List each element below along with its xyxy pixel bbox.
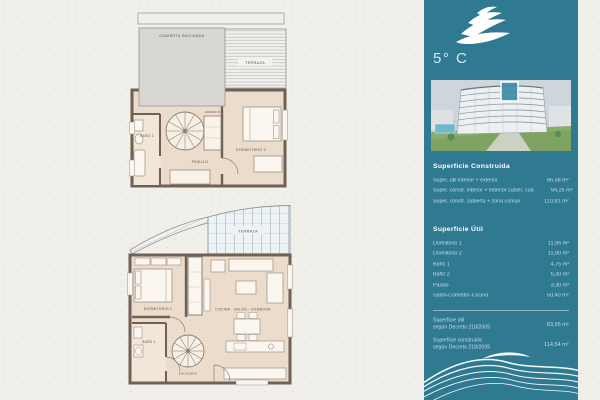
armario-label: ARMARIO xyxy=(204,110,220,114)
dormitorio2-label: DORMITORIO 2 xyxy=(236,148,266,152)
dresser xyxy=(254,156,282,172)
window-opening xyxy=(128,273,133,295)
wardrobe-units xyxy=(135,258,181,265)
section-title: Superficie Construida xyxy=(433,163,569,170)
area-value: 3,30 m² xyxy=(550,283,569,289)
stair-landing xyxy=(170,170,210,184)
decreto-label: Superficie útil según Decreto 218/2005 xyxy=(433,318,490,332)
bed-dormitorio-2 xyxy=(243,107,281,141)
curved-pergola-edge xyxy=(130,217,208,254)
window-opening xyxy=(283,110,288,140)
wardrobe-shaft xyxy=(188,257,202,315)
area-value: 94,25 m² xyxy=(551,188,573,194)
area-value: 50,40 m² xyxy=(547,293,569,299)
area-value: 4,75 m² xyxy=(550,262,569,268)
area-row: Super. útil interior + exterior 86,58 m² xyxy=(433,178,569,184)
area-label: Pasillo xyxy=(433,283,449,288)
lower-floor-plan: TERRAZA xyxy=(108,193,333,393)
superficie-util-section: Superficie Útil Dormitorio 1 11,95 m² Do… xyxy=(433,226,569,303)
salon-label: COCINA - SALÓN - COMEDOR xyxy=(215,307,271,312)
area-value: 11,80 m² xyxy=(548,251,569,257)
cubierta-label: CUBIERTA INCLINADA xyxy=(159,34,205,38)
terraza-lower-label: TERRAZA xyxy=(238,230,258,234)
info-sidebar: 5° C xyxy=(424,0,578,400)
upper-floor-plan-drawing: CUBIERTA INCLINADA TERRAZA BAÑO 2 ARMARI… xyxy=(98,10,313,190)
area-label: Super. constr. interior + exterior cubie… xyxy=(433,188,535,193)
area-label: Super. constr. cubierta + zona común xyxy=(433,199,520,204)
area-row: Super. constr. cubierta + zona común 110… xyxy=(433,199,569,205)
window-opening xyxy=(288,265,293,289)
area-label: Baño 2 xyxy=(433,272,450,277)
armario-closet xyxy=(204,116,221,150)
bano1-label: BAÑO 1 xyxy=(142,339,156,344)
cubierta-inclinada-area xyxy=(139,28,225,106)
section-divider xyxy=(433,310,569,311)
decreto-value: 83,55 m² xyxy=(547,322,569,328)
decreto-label-line2: según Decreto 218/2005 xyxy=(433,325,490,330)
area-label: Salón-Comedor-Cocina xyxy=(433,293,488,298)
area-value: 11,95 m² xyxy=(548,241,569,247)
decreto-label-line1: Superficie útil xyxy=(433,318,464,323)
area-row: Pasillo 3,30 m² xyxy=(433,283,569,289)
area-row: Baño 2 6,30 m² xyxy=(433,272,569,278)
spiral-staircase-lower xyxy=(172,335,204,367)
section-title: Superficie Útil xyxy=(433,226,569,233)
area-value: 86,58 m² xyxy=(547,178,569,184)
pool xyxy=(435,124,455,133)
superficie-construida-section: Superficie Construida Super. útil interi… xyxy=(433,163,569,209)
spiral-staircase-upper xyxy=(166,112,204,150)
area-row: Baño 1 4,75 m² xyxy=(433,262,569,268)
escalera-label: ESCALERA xyxy=(179,372,197,376)
tree xyxy=(555,131,561,137)
decreto-row: Superficie útil según Decreto 218/2005 8… xyxy=(433,317,569,332)
building-render xyxy=(431,80,571,151)
tv-sideboard xyxy=(204,279,210,311)
terraza-label: TERRAZA xyxy=(245,61,265,65)
bed-dormitorio-1 xyxy=(134,269,172,302)
wave-logo-icon xyxy=(453,4,513,48)
area-row: Dormitorio 2 11,80 m² xyxy=(433,251,569,257)
wave-watermark xyxy=(424,342,578,400)
window-opening xyxy=(130,160,135,176)
area-row: Salón-Comedor-Cocina 50,40 m² xyxy=(433,293,569,299)
area-row: Dormitorio 1 11,95 m² xyxy=(433,241,569,247)
pasillo-label: PASILLO xyxy=(192,160,209,164)
window-opening xyxy=(288,309,293,337)
area-label: Dormitorio 2 xyxy=(433,251,462,256)
bano2-label: BAÑO 2 xyxy=(140,133,154,138)
window-opening xyxy=(236,380,268,385)
window-opening xyxy=(130,122,135,134)
area-row: Super. constr. interior + exterior cubie… xyxy=(433,188,569,194)
unit-highlight-marker xyxy=(501,82,518,101)
area-label: Dormitorio 1 xyxy=(433,241,462,246)
area-label: Super. útil interior + exterior xyxy=(433,178,498,183)
lower-floor-plan-drawing: TERRAZA xyxy=(108,193,333,393)
area-label: Baño 1 xyxy=(433,262,450,267)
roof-edge-strip xyxy=(138,13,284,24)
upper-floor-plan: CUBIERTA INCLINADA TERRAZA BAÑO 2 ARMARI… xyxy=(98,10,313,190)
area-value: 6,30 m² xyxy=(550,272,569,278)
area-value: 110,81 m² xyxy=(545,199,569,205)
dormitorio1-label: DORMITORIO 1 xyxy=(144,307,172,311)
tree xyxy=(448,134,455,141)
unit-label: 5° C xyxy=(433,50,468,67)
